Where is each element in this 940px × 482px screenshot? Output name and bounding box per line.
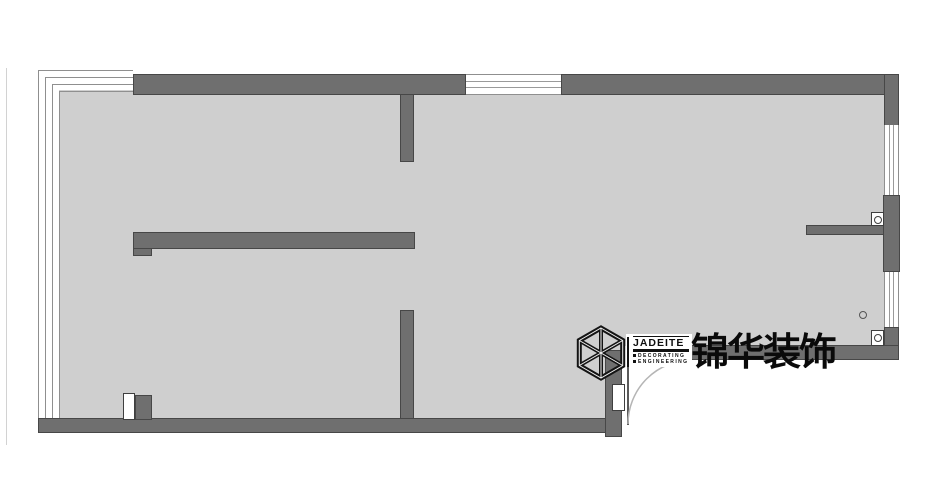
- logo-divider-line: [627, 337, 629, 367]
- jadeite-cube-logo-icon: [579, 328, 622, 378]
- brand-name-en: JADEITE: [633, 338, 684, 349]
- brand-wordmark-block: JADEITE DECORATING ENGINEERING: [626, 334, 692, 367]
- floor-plan-canvas: JADEITE DECORATING ENGINEERING 锦华装饰: [0, 0, 940, 482]
- brand-tagline-line2: ENGINEERING: [633, 360, 688, 365]
- logo-underline-bar: [633, 349, 689, 352]
- brand-name-cn: 锦华装饰: [691, 333, 835, 371]
- door-swing-arc: [628, 360, 692, 424]
- bullet-square-icon: [633, 360, 636, 363]
- drawing-overlay: [0, 0, 940, 482]
- bullet-square-icon: [633, 354, 636, 357]
